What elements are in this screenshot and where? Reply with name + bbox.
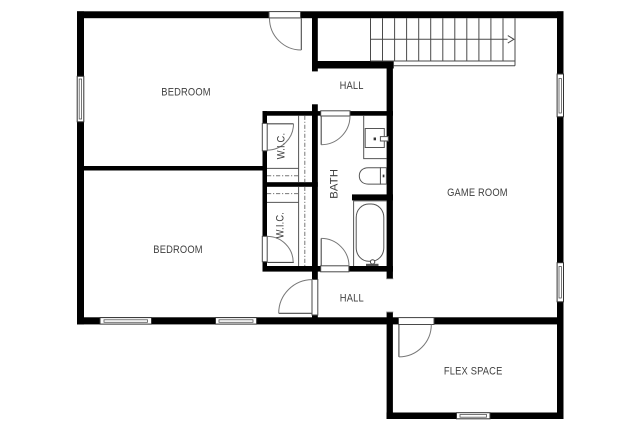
svg-text:BATH: BATH — [328, 169, 340, 199]
svg-text:GAME ROOM: GAME ROOM — [447, 187, 508, 199]
svg-text:HALL: HALL — [340, 293, 364, 305]
svg-text:W.I.C.: W.I.C. — [275, 212, 287, 238]
svg-text:HALL: HALL — [340, 80, 364, 92]
svg-text:BEDROOM: BEDROOM — [153, 244, 202, 256]
svg-text:W.I.C.: W.I.C. — [276, 133, 288, 159]
svg-text:BEDROOM: BEDROOM — [161, 87, 210, 99]
svg-text:FLEX SPACE: FLEX SPACE — [444, 366, 503, 378]
